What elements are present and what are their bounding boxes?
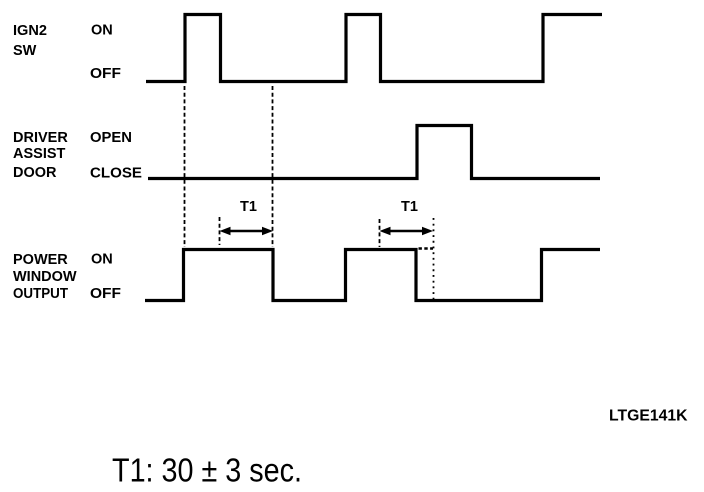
svg-text:POWER: POWER: [13, 252, 68, 268]
svg-text:SW: SW: [13, 43, 37, 59]
svg-text:ON: ON: [91, 252, 113, 268]
svg-text:ON: ON: [91, 23, 113, 39]
svg-text:WINDOW: WINDOW: [13, 269, 77, 285]
svg-text:T1: T1: [240, 199, 257, 215]
svg-text:DRIVER: DRIVER: [13, 130, 68, 146]
svg-text:T1: T1: [401, 199, 418, 215]
svg-text:OFF: OFF: [90, 286, 121, 302]
svg-text:T1: 30 ± 3 sec.: T1: 30 ± 3 sec.: [112, 452, 302, 489]
svg-text:ASSIST: ASSIST: [13, 146, 66, 162]
svg-text:DOOR: DOOR: [13, 165, 57, 181]
svg-text:OUTPUT: OUTPUT: [13, 286, 68, 302]
svg-text:IGN2: IGN2: [13, 23, 47, 39]
svg-text:OFF: OFF: [90, 66, 121, 82]
svg-text:OPEN: OPEN: [90, 130, 132, 146]
svg-text:LTGE141K: LTGE141K: [609, 408, 688, 425]
svg-text:CLOSE: CLOSE: [90, 166, 142, 182]
